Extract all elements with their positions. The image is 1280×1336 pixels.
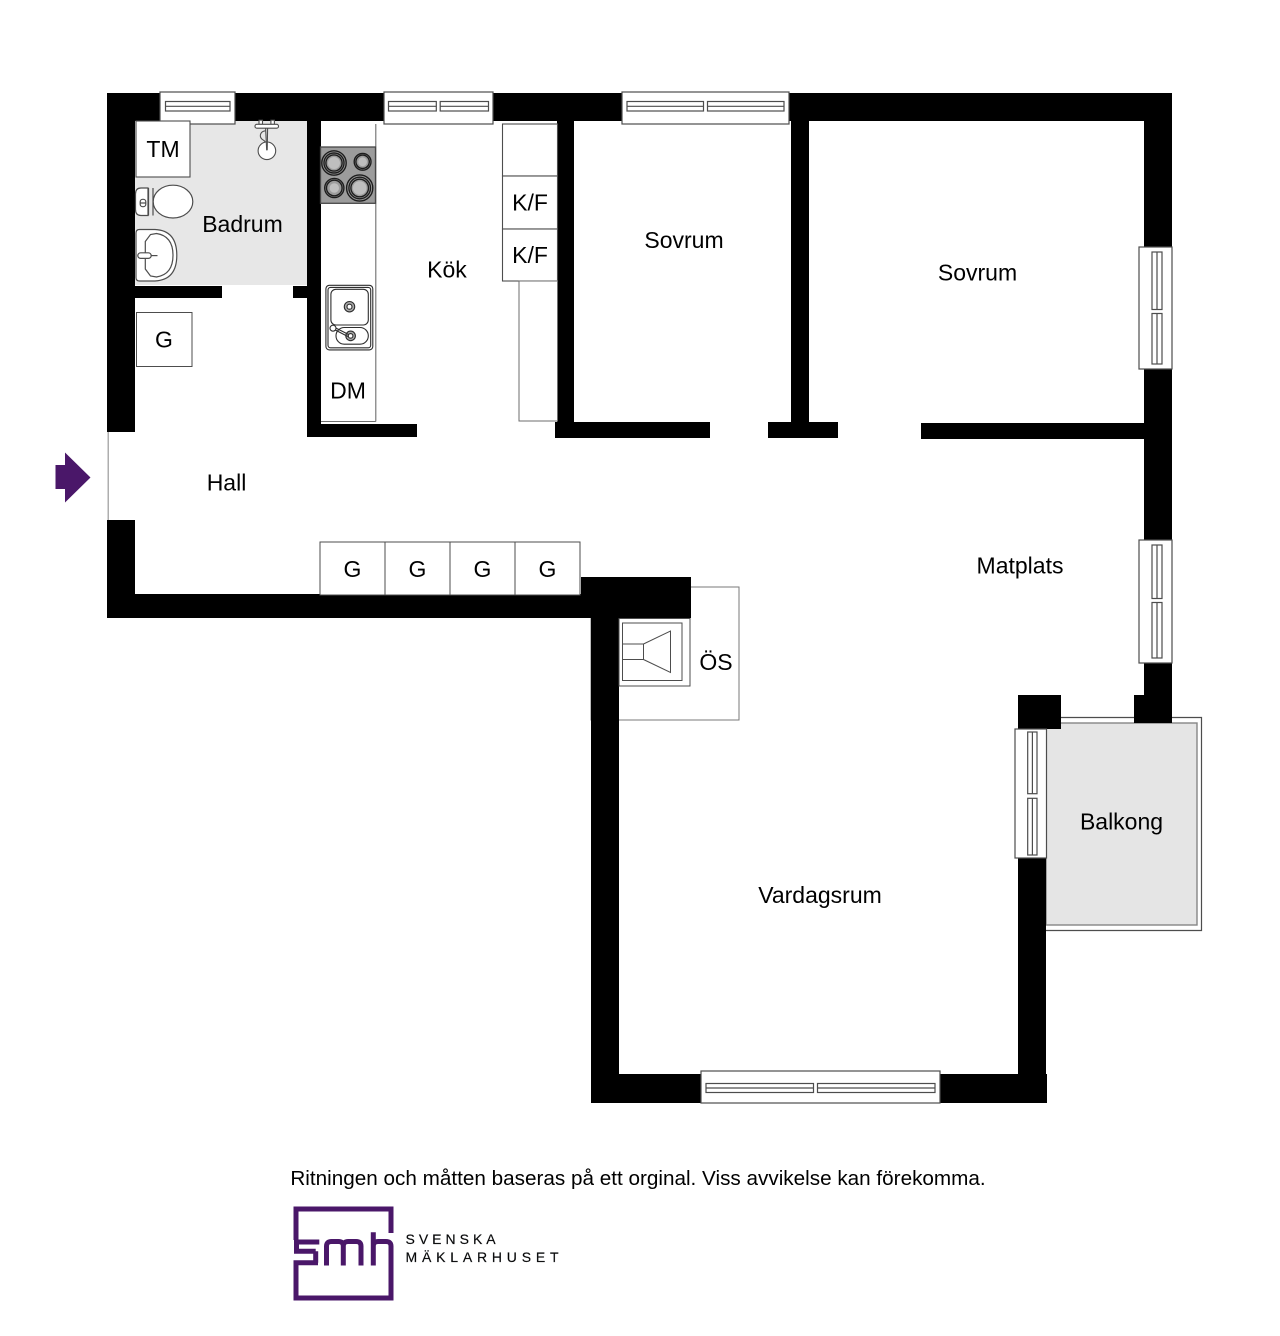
svg-text:Matplats: Matplats xyxy=(977,553,1064,579)
svg-text:Vardagsrum: Vardagsrum xyxy=(758,882,882,908)
svg-text:TM: TM xyxy=(146,136,179,162)
svg-text:Sovrum: Sovrum xyxy=(938,260,1017,286)
svg-text:MÄKLARHUSET: MÄKLARHUSET xyxy=(406,1249,564,1265)
svg-text:K/F: K/F xyxy=(512,190,548,216)
svg-text:Ritningen och måtten baseras p: Ritningen och måtten baseras på ett orgi… xyxy=(290,1167,985,1190)
svg-text:G: G xyxy=(409,556,427,582)
svg-text:G: G xyxy=(344,556,362,582)
svg-text:Kök: Kök xyxy=(427,257,467,283)
svg-text:G: G xyxy=(474,556,492,582)
svg-text:G: G xyxy=(155,327,173,353)
svg-text:SVENSKA: SVENSKA xyxy=(406,1231,500,1247)
svg-text:Badrum: Badrum xyxy=(202,211,283,237)
svg-text:Balkong: Balkong xyxy=(1080,809,1163,835)
svg-text:G: G xyxy=(539,556,557,582)
svg-text:Sovrum: Sovrum xyxy=(644,227,723,253)
svg-text:K/F: K/F xyxy=(512,242,548,268)
svg-text:Hall: Hall xyxy=(207,470,247,496)
svg-text:ÖS: ÖS xyxy=(699,649,732,675)
svg-text:DM: DM xyxy=(330,378,366,404)
